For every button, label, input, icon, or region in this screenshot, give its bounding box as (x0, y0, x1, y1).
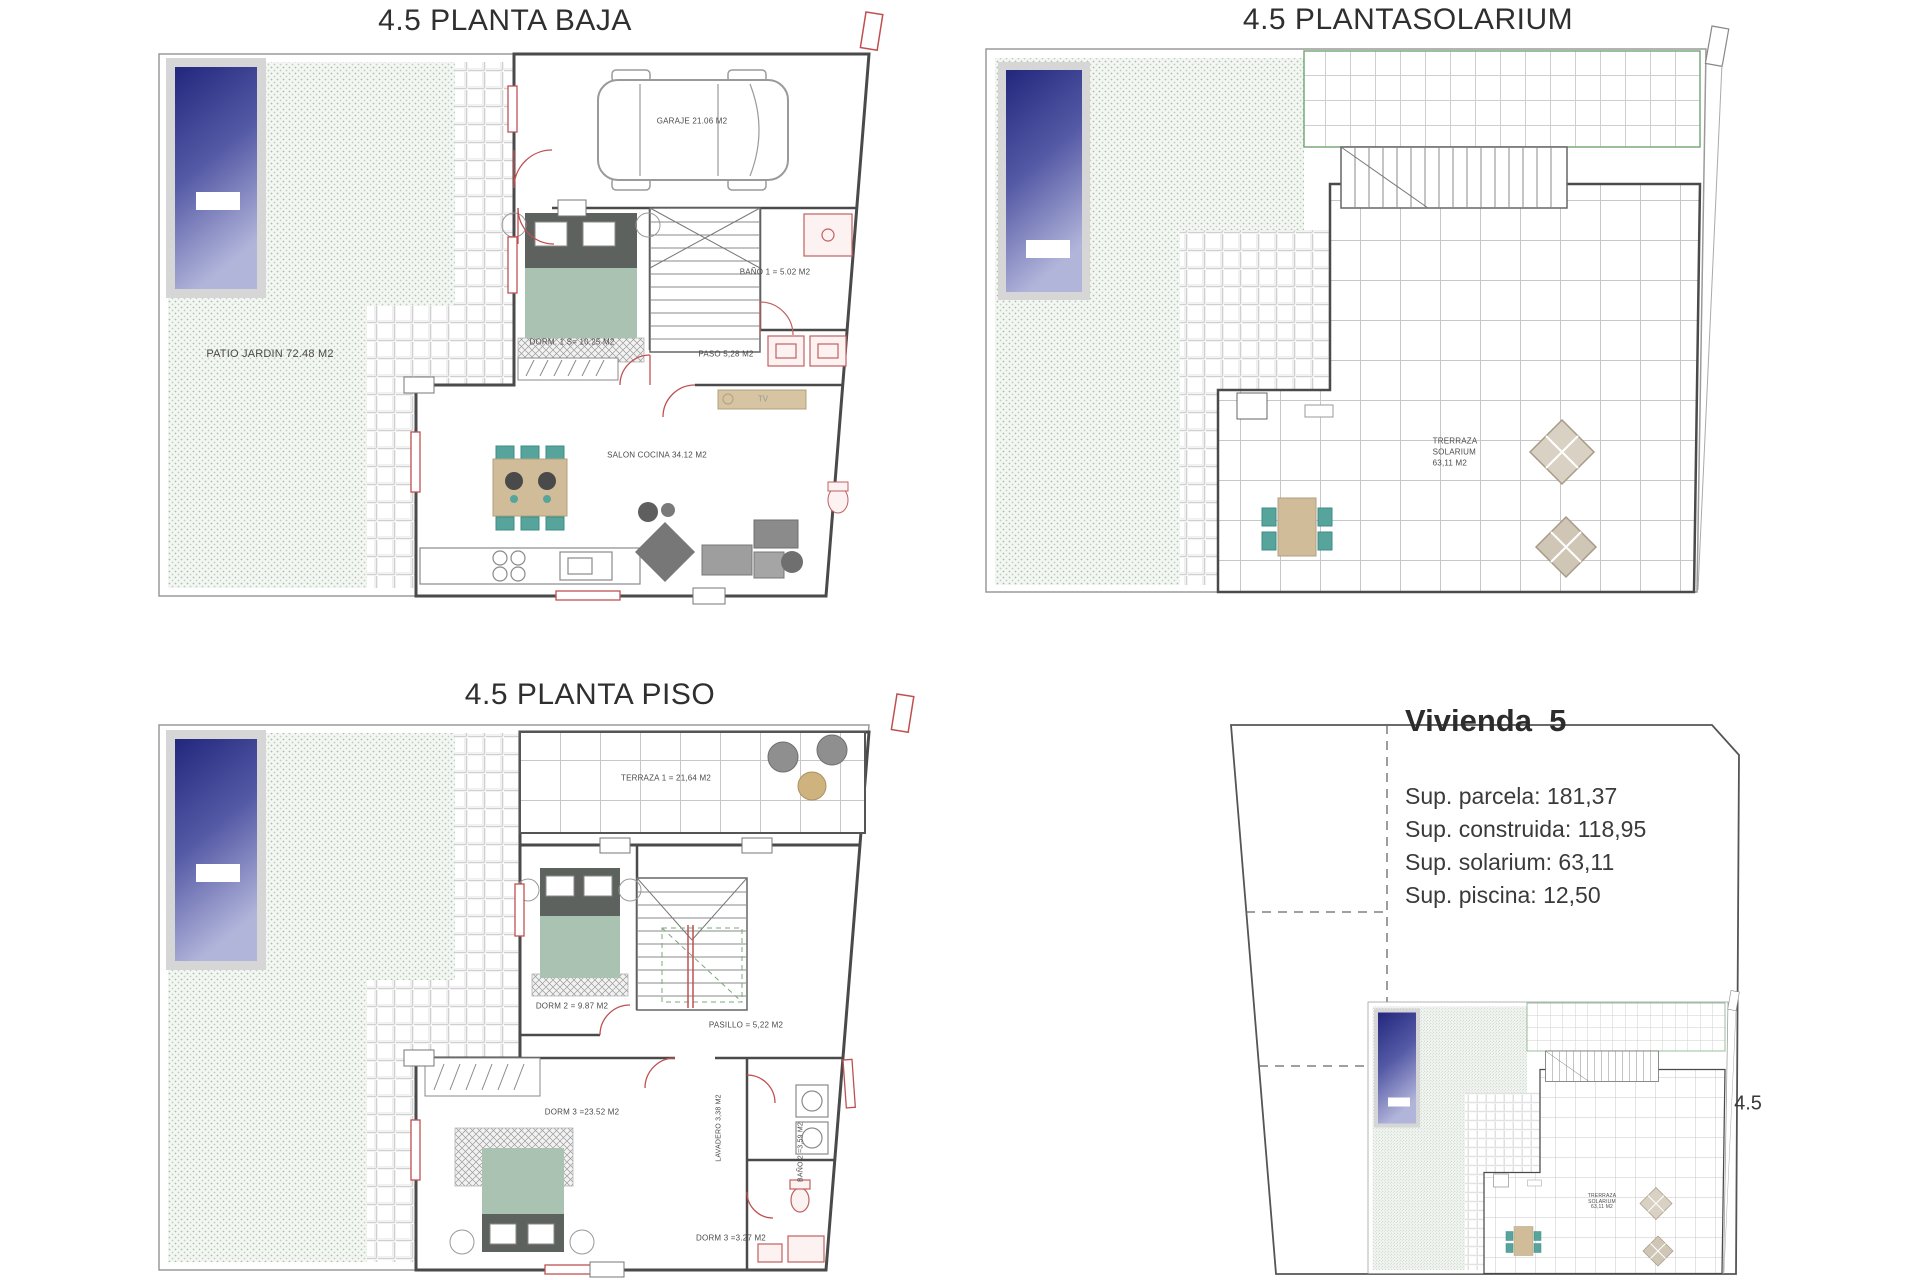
tiled-path-2 (1180, 390, 1218, 585)
access-door (1237, 393, 1267, 419)
label-tv: TV (758, 395, 768, 404)
boundary-flag (891, 694, 913, 732)
label-salon-cocina: SALON COCINA 34.12 M2 (607, 451, 707, 460)
label-patio-jardin: PATIO JARDIN 72.48 M2 (206, 348, 333, 360)
parcel-ref-45: 4.5 (1734, 1093, 1762, 1116)
vivienda-line-solarium: Sup. solarium: 63,11 (1405, 846, 1646, 879)
title-planta-piso: 4.5 PLANTA PISO (465, 678, 715, 712)
vivienda-title: Vivienda 5 (1405, 703, 1566, 739)
label-dorm1: DORM. 1 S= 10.25 M2 (530, 338, 615, 347)
label-terraza-solarium: TRERRAZA SOLARIUM 63,11 M2 (1433, 436, 1478, 469)
plan-planta-piso (159, 694, 914, 1277)
pool (166, 58, 266, 298)
wardrobe (518, 358, 618, 380)
label-dorm3b: DORM 3 =3.27 M2 (696, 1234, 766, 1243)
mini-label-l3: 63,11 M2 (1588, 1205, 1617, 1211)
plan-planta-solarium (986, 26, 1729, 592)
staircase (1341, 147, 1567, 208)
pool (166, 730, 266, 970)
label-terraza-solarium-l2: SOLARIUM (1433, 447, 1478, 458)
label-lavadero: LAVADERO 3,38 M2 (716, 1094, 723, 1162)
vivienda-line-piscina: Sup. piscina: 12,50 (1405, 879, 1646, 912)
label-bano2: BAÑO 2 =3,59 M2 (798, 1122, 805, 1182)
roof-grid-strip (1304, 51, 1700, 147)
mini-solarium-plan (1368, 991, 1739, 1274)
label-bano1: BAÑO 1 = 5.02 M2 (740, 268, 811, 277)
vivienda-surface-list: Sup. parcela: 181,37 Sup. construida: 11… (1405, 780, 1646, 912)
label-dorm2: DORM 2 = 9.87 M2 (536, 1002, 608, 1011)
floor-plan-drawing (0, 0, 1920, 1280)
label-pasillo: PASILLO = 5,22 M2 (709, 1021, 783, 1030)
car (598, 70, 788, 190)
dining-table (493, 446, 567, 530)
label-paso: PASO 5,28 M2 (698, 350, 753, 359)
planter (1305, 405, 1333, 417)
title-planta-solarium: 4.5 PLANTASOLARIUM (1243, 3, 1573, 37)
vivienda-line-parcela: Sup. parcela: 181,37 (1405, 780, 1646, 813)
mini-label-terraza-solarium: TRERRAZA SOLARIUM 63,11 M2 (1588, 1194, 1617, 1211)
pool (998, 62, 1090, 300)
kitchen-counter (420, 548, 640, 584)
floor-plan-sheet: 4.5 PLANTA BAJA 4.5 PLANTASOLARIUM 4.5 P… (0, 0, 1920, 1280)
label-terraza1: TERRAZA 1 = 21,64 M2 (621, 774, 711, 783)
boundary-flag (1705, 26, 1728, 66)
boundary-flag (860, 12, 882, 50)
title-planta-baja: 4.5 PLANTA BAJA (378, 4, 632, 38)
label-garaje: GARAJE 21.06 M2 (657, 117, 728, 126)
label-terraza-solarium-l1: TRERRAZA (1433, 436, 1478, 447)
tiled-path (1180, 230, 1330, 390)
plan-planta-baja (159, 12, 883, 604)
label-terraza-solarium-l3: 63,11 M2 (1433, 458, 1478, 469)
vivienda-line-construida: Sup. construida: 118,95 (1405, 813, 1646, 846)
label-dorm3: DORM 3 =23.52 M2 (545, 1108, 620, 1117)
staircase (650, 208, 760, 352)
staircase (637, 878, 747, 1010)
wardrobe (425, 1058, 540, 1096)
toilet-tank (828, 482, 848, 491)
